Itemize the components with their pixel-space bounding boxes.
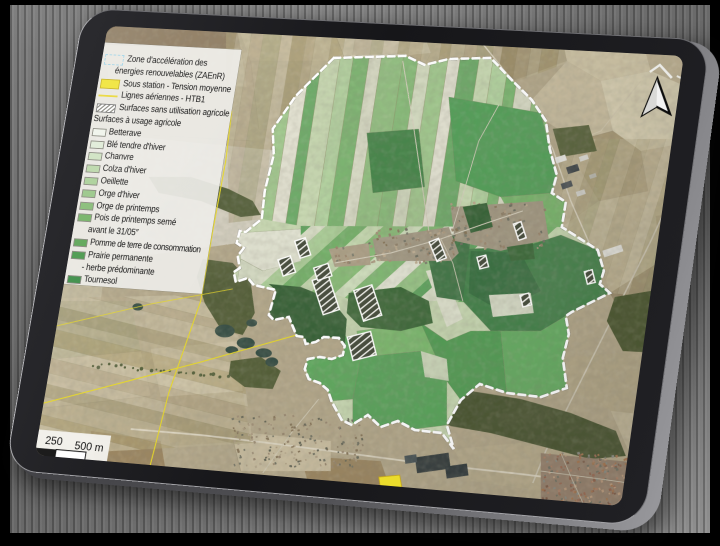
svg-text:250: 250	[44, 435, 64, 448]
